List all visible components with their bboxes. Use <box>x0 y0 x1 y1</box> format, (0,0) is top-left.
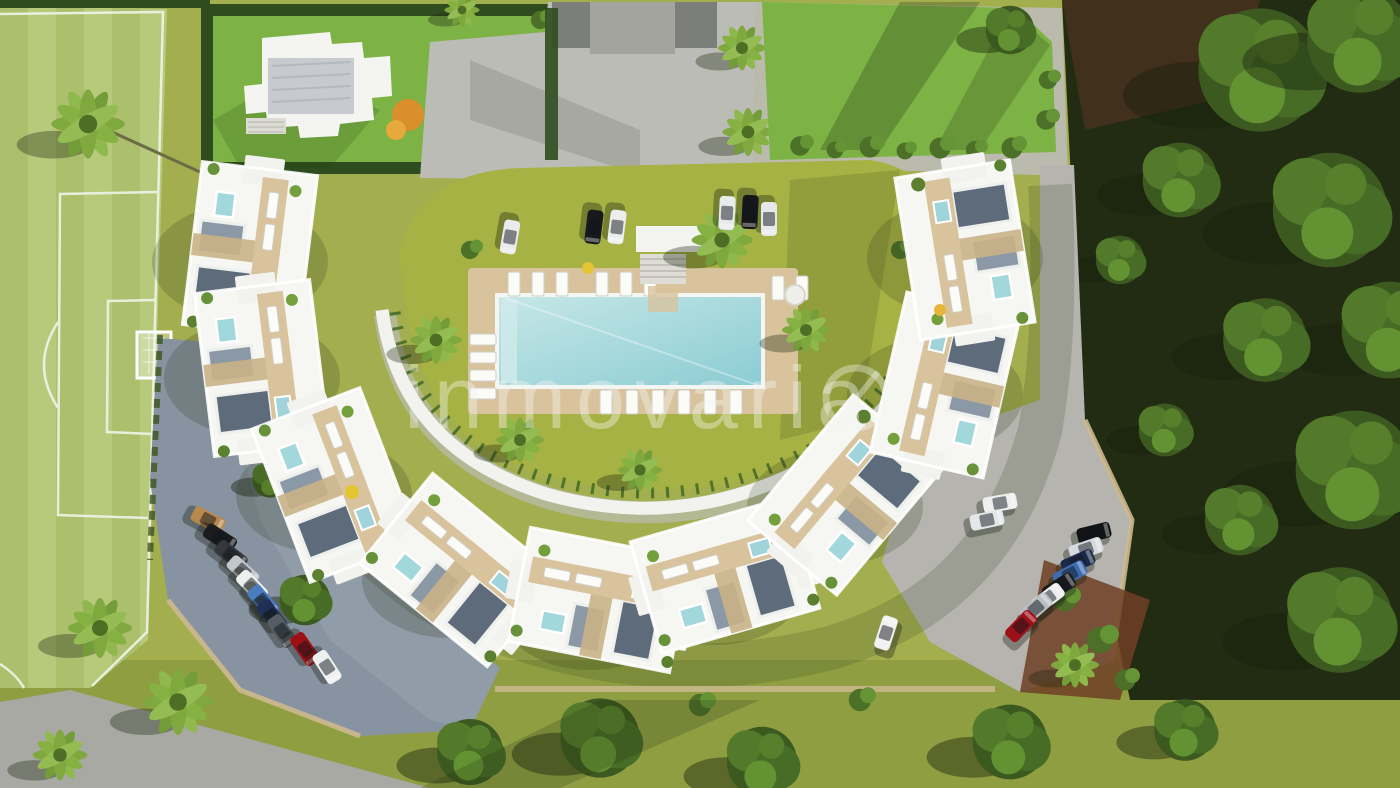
watermark: inmovaria <box>404 348 886 447</box>
top-hedge <box>0 0 210 8</box>
car <box>755 195 777 236</box>
parasol <box>785 285 805 305</box>
top-lawn <box>762 2 1061 160</box>
car <box>712 188 736 230</box>
aerial-development-render: inmovaria <box>0 0 1400 788</box>
watermark-text: inmovaria <box>404 348 875 447</box>
